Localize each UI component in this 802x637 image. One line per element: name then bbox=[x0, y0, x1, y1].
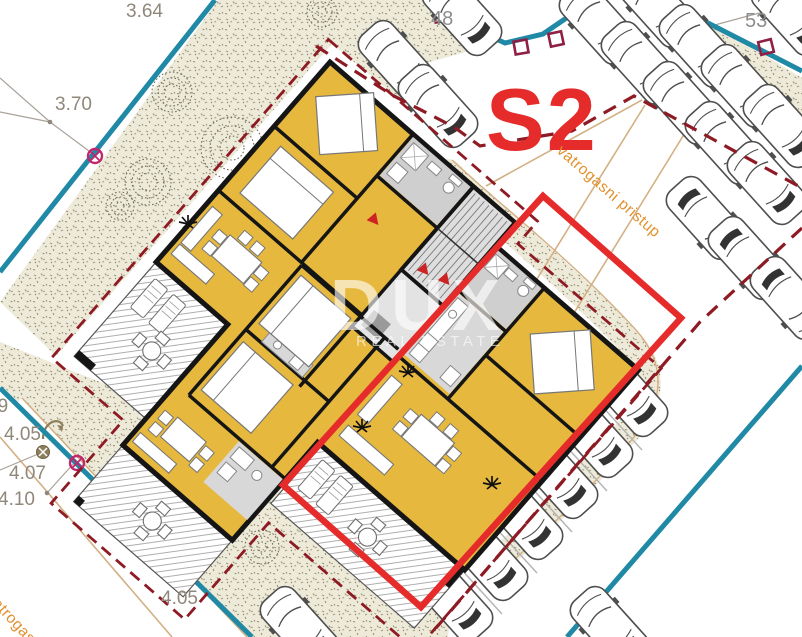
elevation-label: 4.05 bbox=[161, 588, 198, 609]
elevation-label: 4.10 bbox=[0, 489, 35, 510]
site-plan: DUX REAL ESTATE 3.64 3.70 09 4.05 4.07 4… bbox=[0, 0, 802, 637]
fire-access-label-2: vatrogasni pristup bbox=[0, 589, 85, 637]
elevation-label: 3.64 bbox=[126, 1, 163, 22]
parcel-number: 48 bbox=[431, 8, 453, 30]
parcel-number: 53 bbox=[745, 10, 767, 32]
elevation-label: 09 bbox=[0, 396, 8, 417]
elevation-label: 4.05 bbox=[4, 424, 41, 445]
elevation-label: 4.07 bbox=[9, 463, 46, 484]
site-plan-canvas: DUX REAL ESTATE 3.64 3.70 09 4.05 4.07 4… bbox=[0, 0, 802, 637]
watermark-tagline: REAL ESTATE bbox=[356, 333, 504, 350]
elevation-label: 3.70 bbox=[55, 94, 92, 115]
unit-label-s2: S2 bbox=[486, 70, 598, 169]
